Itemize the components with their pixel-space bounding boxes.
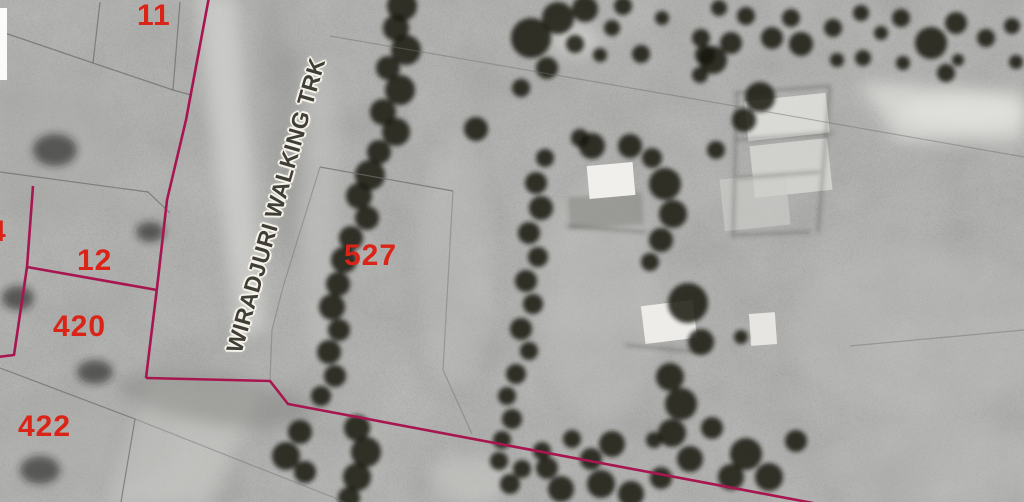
aerial-photo-canvas bbox=[0, 0, 1024, 502]
building-house-roof bbox=[587, 162, 636, 199]
map-viewport[interactable]: WIRADJURI WALKING TRK 11412420422527 bbox=[0, 0, 1024, 502]
imagery-edge-artifact bbox=[0, 8, 7, 80]
building-small-shed bbox=[749, 312, 777, 346]
